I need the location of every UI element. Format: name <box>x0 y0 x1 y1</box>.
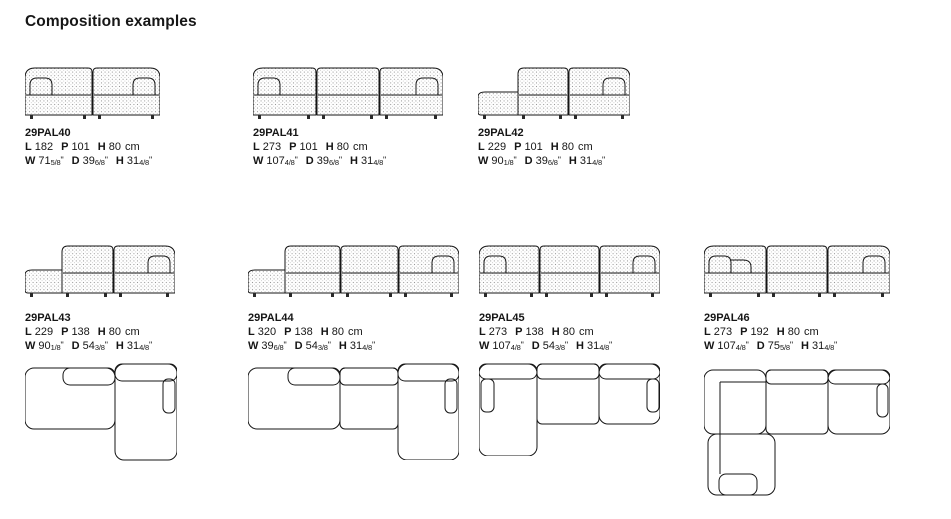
inch-mark: " <box>609 340 612 350</box>
catalog-page: { "title": "Composition examples", "metr… <box>0 0 951 519</box>
dim-label: H <box>326 141 334 153</box>
dim-fraction: 4/8 <box>362 343 372 352</box>
inch-mark: " <box>283 340 286 350</box>
composition-caption: 29PAL45L273P138H80cmW1074/8"D543/8"H314/… <box>479 312 694 355</box>
elevation-drawing <box>478 64 630 120</box>
inch-mark: " <box>558 155 561 165</box>
dimensions-metric: L273P192H80cm <box>704 326 919 340</box>
dim-value: 80 <box>562 141 574 153</box>
dim-value: 107 <box>717 340 735 352</box>
dim-label: D <box>72 340 80 352</box>
inch-mark: " <box>521 340 524 350</box>
dim-label: H <box>116 340 124 352</box>
dim-label: H <box>98 326 106 338</box>
dim-value: 31 <box>361 155 373 167</box>
product-code: 29PAL45 <box>479 312 694 326</box>
dim-label: H <box>321 326 329 338</box>
product-code: 29PAL41 <box>253 127 468 141</box>
dimensions-metric: L229P101H80cm <box>478 141 693 155</box>
dim-fraction: 6/8 <box>329 158 339 167</box>
dim-value: 90 <box>491 155 503 167</box>
dim-value: 80 <box>788 326 800 338</box>
inch-mark: " <box>60 155 63 165</box>
dim-label: P <box>514 141 521 153</box>
dim-value: 101 <box>299 141 317 153</box>
dim-label: L <box>25 326 32 338</box>
dim-fraction: 4/8 <box>592 158 602 167</box>
page-title: Composition examples <box>25 13 197 31</box>
dim-value: 31 <box>127 340 139 352</box>
dimensions-metric: L182P101H80cm <box>25 141 240 155</box>
dimensions-imperial: W1074/8"D543/8"H314/8" <box>479 339 694 355</box>
dim-value: 107 <box>266 155 284 167</box>
dim-fraction: 4/8 <box>824 343 834 352</box>
dim-label: P <box>289 141 296 153</box>
dim-label: H <box>116 155 124 167</box>
dim-value: 273 <box>714 326 732 338</box>
dim-value: 80 <box>337 141 349 153</box>
product-code: 29PAL40 <box>25 127 240 141</box>
dim-fraction: 5/8 <box>780 343 790 352</box>
dim-fraction: 4/8 <box>285 158 295 167</box>
elevation-drawing <box>25 242 175 298</box>
inch-mark: " <box>372 340 375 350</box>
dim-label: H <box>552 326 560 338</box>
dimensions-imperial: W901/8"D396/8"H314/8" <box>478 154 693 170</box>
dim-label: H <box>777 326 785 338</box>
dim-fraction: 6/8 <box>95 158 105 167</box>
product-code: 29PAL46 <box>704 312 919 326</box>
dim-fraction: 4/8 <box>373 158 383 167</box>
metric-unit: cm <box>578 141 593 153</box>
dim-label: D <box>525 155 533 167</box>
dim-label: D <box>295 340 303 352</box>
dimensions-imperial: W1074/8"D396/8"H314/8" <box>253 154 468 170</box>
plan-drawing <box>704 362 890 497</box>
dim-value: 54 <box>306 340 318 352</box>
dim-label: P <box>61 141 68 153</box>
dim-label: L <box>479 326 486 338</box>
dim-value: 31 <box>127 155 139 167</box>
dimensions-metric: L320P138H80cm <box>248 326 463 340</box>
dim-label: W <box>704 340 714 352</box>
product-code: 29PAL43 <box>25 312 240 326</box>
dim-value: 229 <box>488 141 506 153</box>
dimensions-imperial: W901/8"D543/8"H314/8" <box>25 339 240 355</box>
dim-label: W <box>478 155 488 167</box>
plan-drawing <box>248 362 459 460</box>
dimensions-imperial: W396/8"D543/8"H314/8" <box>248 339 463 355</box>
dim-label: H <box>350 155 358 167</box>
inch-mark: " <box>834 340 837 350</box>
dimensions-metric: L273P138H80cm <box>479 326 694 340</box>
dimensions-imperial: W1074/8"D755/8"H314/8" <box>704 339 919 355</box>
dim-fraction: 1/8 <box>51 343 61 352</box>
dim-fraction: 1/8 <box>504 158 514 167</box>
inch-mark: " <box>565 340 568 350</box>
dim-label: L <box>704 326 711 338</box>
dim-label: W <box>25 340 35 352</box>
dim-value: 39 <box>536 155 548 167</box>
dim-value: 80 <box>109 326 121 338</box>
dim-label: H <box>801 340 809 352</box>
dim-value: 54 <box>83 340 95 352</box>
dim-value: 138 <box>525 326 543 338</box>
dimensions-imperial: W715/8"D396/8"H314/8" <box>25 154 240 170</box>
dim-fraction: 4/8 <box>599 343 609 352</box>
dim-label: L <box>478 141 485 153</box>
composition-caption: 29PAL46L273P192H80cmW1074/8"D755/8"H314/… <box>704 312 919 355</box>
dim-label: P <box>61 326 68 338</box>
dim-label: L <box>25 141 32 153</box>
dim-value: 71 <box>38 155 50 167</box>
inch-mark: " <box>295 155 298 165</box>
inch-mark: " <box>383 155 386 165</box>
dim-label: P <box>740 326 747 338</box>
dim-fraction: 6/8 <box>274 343 284 352</box>
dim-value: 31 <box>587 340 599 352</box>
inch-mark: " <box>602 155 605 165</box>
plan-drawing <box>25 362 177 462</box>
dim-value: 39 <box>261 340 273 352</box>
inch-mark: " <box>60 340 63 350</box>
dim-label: H <box>339 340 347 352</box>
dim-fraction: 3/8 <box>95 343 105 352</box>
dim-value: 273 <box>263 141 281 153</box>
dim-value: 138 <box>71 326 89 338</box>
dim-value: 39 <box>317 155 329 167</box>
dim-fraction: 3/8 <box>318 343 328 352</box>
dim-label: L <box>248 326 255 338</box>
composition-caption: 29PAL41L273P101H80cmW1074/8"D396/8"H314/… <box>253 127 468 170</box>
dim-value: 39 <box>83 155 95 167</box>
dim-value: 107 <box>492 340 510 352</box>
inch-mark: " <box>513 155 516 165</box>
dim-value: 31 <box>350 340 362 352</box>
inch-mark: " <box>790 340 793 350</box>
dim-value: 75 <box>768 340 780 352</box>
dim-value: 90 <box>38 340 50 352</box>
dim-value: 320 <box>258 326 276 338</box>
dim-value: 273 <box>489 326 507 338</box>
dim-label: W <box>25 155 35 167</box>
plan-drawing <box>479 362 660 456</box>
dimensions-metric: L229P138H80cm <box>25 326 240 340</box>
dim-value: 54 <box>543 340 555 352</box>
dim-label: W <box>253 155 263 167</box>
dim-label: H <box>576 340 584 352</box>
dim-label: D <box>532 340 540 352</box>
elevation-drawing <box>479 242 660 298</box>
elevation-drawing <box>248 242 459 298</box>
composition-caption: 29PAL42L229P101H80cmW901/8"D396/8"H314/8… <box>478 127 693 170</box>
dim-value: 192 <box>750 326 768 338</box>
dim-value: 31 <box>580 155 592 167</box>
dim-label: P <box>515 326 522 338</box>
composition-caption: 29PAL40L182P101H80cmW715/8"D396/8"H314/8… <box>25 127 240 170</box>
metric-unit: cm <box>125 326 140 338</box>
elevation-drawing <box>25 64 160 120</box>
inch-mark: " <box>328 340 331 350</box>
dim-label: H <box>569 155 577 167</box>
dim-value: 229 <box>35 326 53 338</box>
dim-label: H <box>98 141 106 153</box>
inch-mark: " <box>105 155 108 165</box>
inch-mark: " <box>105 340 108 350</box>
dim-value: 80 <box>109 141 121 153</box>
composition-caption: 29PAL44L320P138H80cmW396/8"D543/8"H314/8… <box>248 312 463 355</box>
dim-fraction: 4/8 <box>736 343 746 352</box>
dim-value: 101 <box>71 141 89 153</box>
metric-unit: cm <box>348 326 363 338</box>
inch-mark: " <box>746 340 749 350</box>
elevation-drawing <box>704 242 890 298</box>
dim-value: 80 <box>563 326 575 338</box>
dim-fraction: 4/8 <box>139 343 149 352</box>
dimensions-metric: L273P101H80cm <box>253 141 468 155</box>
dim-value: 31 <box>812 340 824 352</box>
metric-unit: cm <box>804 326 819 338</box>
product-code: 29PAL42 <box>478 127 693 141</box>
dim-label: D <box>757 340 765 352</box>
dim-label: W <box>479 340 489 352</box>
dim-label: D <box>72 155 80 167</box>
dim-fraction: 6/8 <box>548 158 558 167</box>
dim-fraction: 4/8 <box>511 343 521 352</box>
dim-label: L <box>253 141 260 153</box>
metric-unit: cm <box>579 326 594 338</box>
dim-label: H <box>551 141 559 153</box>
dim-fraction: 3/8 <box>555 343 565 352</box>
dim-value: 80 <box>332 326 344 338</box>
inch-mark: " <box>149 340 152 350</box>
dim-label: D <box>306 155 314 167</box>
composition-caption: 29PAL43L229P138H80cmW901/8"D543/8"H314/8… <box>25 312 240 355</box>
elevation-drawing <box>253 64 443 120</box>
inch-mark: " <box>339 155 342 165</box>
dim-value: 182 <box>35 141 53 153</box>
metric-unit: cm <box>125 141 140 153</box>
inch-mark: " <box>149 155 152 165</box>
dim-label: W <box>248 340 258 352</box>
dim-value: 101 <box>524 141 542 153</box>
dim-label: P <box>284 326 291 338</box>
dim-fraction: 5/8 <box>51 158 61 167</box>
product-code: 29PAL44 <box>248 312 463 326</box>
dim-value: 138 <box>294 326 312 338</box>
metric-unit: cm <box>353 141 368 153</box>
dim-fraction: 4/8 <box>139 158 149 167</box>
